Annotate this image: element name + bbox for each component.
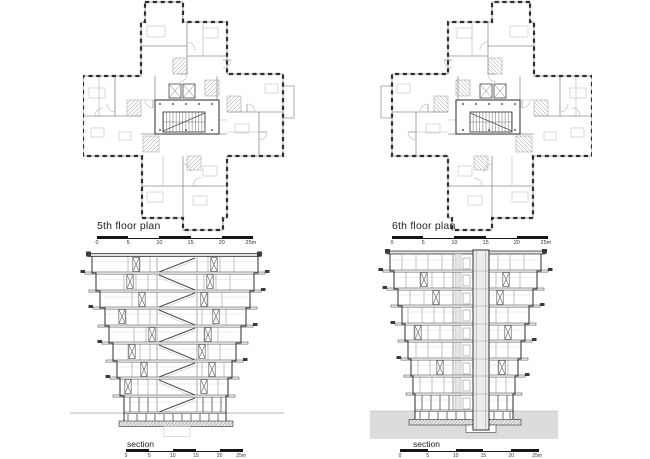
scale-bar-labels: 0 5 10 15 20 25m [97,240,253,247]
scale-tick-label: 10 [156,240,162,246]
scale-tick-label: 0 [95,240,98,246]
section-right-label: section [413,439,440,449]
scale-tick-label: 0 [399,453,402,459]
floor-plan-6-drawing [376,0,592,232]
scale-bar-plan-right: 0 5 10 15 20 25m [392,236,548,247]
scale-bar-line [126,449,243,452]
scale-bar-line [400,449,539,452]
section-right-drawing [358,248,588,443]
plan-6-label: 6th floor plan [392,220,456,232]
scale-tick-label: 15 [193,453,199,459]
scale-tick-label: 0 [390,240,393,246]
section-left-drawing [62,250,292,440]
scale-tick-label: 25m [246,240,257,246]
scale-tick-label: 20 [217,453,223,459]
scale-tick-label: 25m [541,240,552,246]
scale-tick-label: 25m [236,453,246,459]
scale-tick-label: 15 [188,240,194,246]
scale-tick-label: 5 [127,240,130,246]
plan-5-label: 5th floor plan [97,220,161,232]
scale-bar-line [392,236,548,239]
scale-bar-section-right: 0 5 10 15 20 25m [400,449,539,459]
scale-bar-section-left: 0 5 10 15 20 25m [126,449,243,459]
scale-bar-labels: 0 5 10 15 20 25m [126,453,243,459]
scale-bar-plan-left: 0 5 10 15 20 25m [97,236,253,247]
scale-tick-label: 0 [125,453,128,459]
floor-plan-5-drawing [83,0,299,232]
scale-tick-label: 10 [453,453,459,459]
scale-tick-label: 20 [508,453,514,459]
section-left-label: section [127,439,154,449]
scale-tick-label: 20 [514,240,520,246]
scale-bar-labels: 0 5 10 15 20 25m [400,453,539,459]
scale-bar-labels: 0 5 10 15 20 25m [392,240,548,247]
scale-tick-label: 15 [483,240,489,246]
scale-tick-label: 5 [422,240,425,246]
scale-tick-label: 20 [219,240,225,246]
architecture-sheet: 5th floor plan 6th floor plan section se… [0,0,650,459]
scale-tick-label: 10 [170,453,176,459]
scale-tick-label: 15 [481,453,487,459]
scale-tick-label: 25m [532,453,542,459]
scale-tick-label: 5 [426,453,429,459]
scale-bar-line [97,236,253,239]
scale-tick-label: 10 [451,240,457,246]
scale-tick-label: 5 [148,453,151,459]
